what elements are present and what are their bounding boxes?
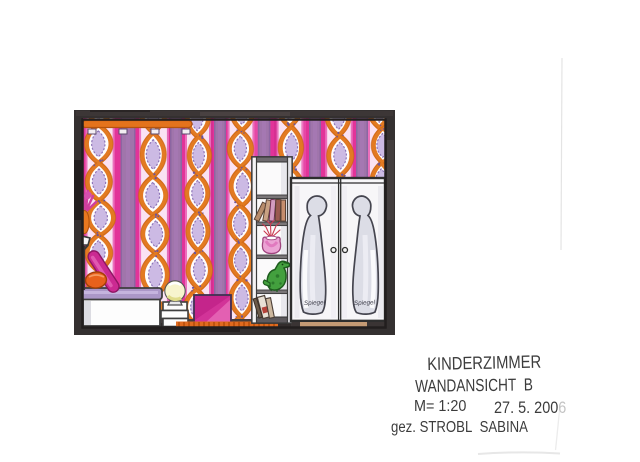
svg-text:Spiegel: Spiegel: [354, 299, 376, 307]
svg-text:Spiegel: Spiegel: [304, 299, 326, 307]
